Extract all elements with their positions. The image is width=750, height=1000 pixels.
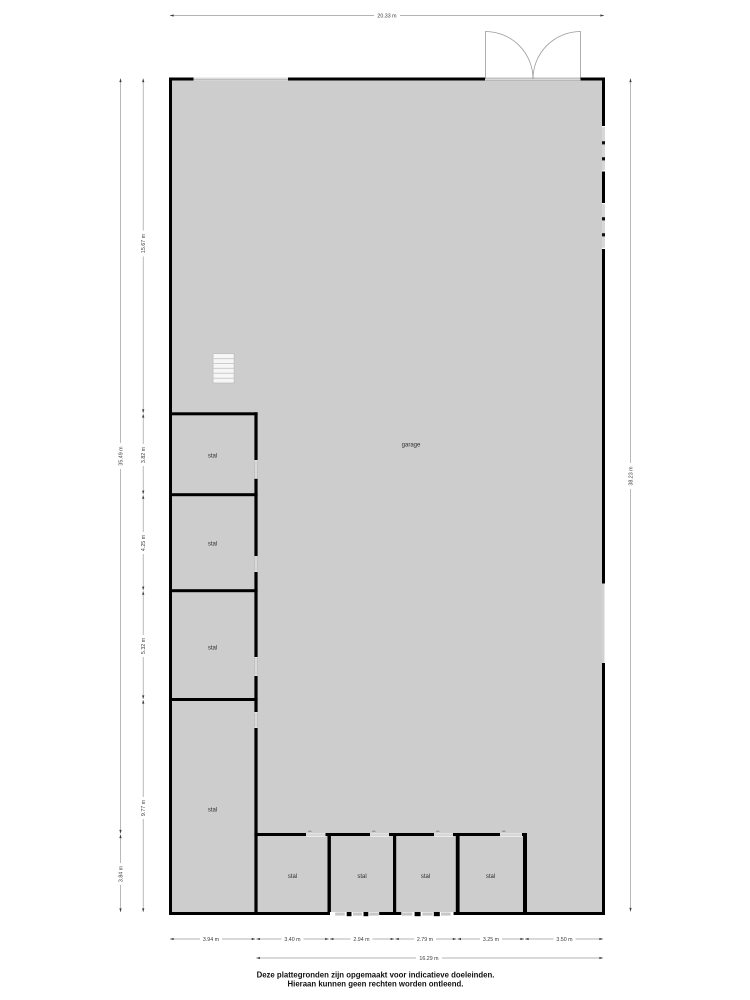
svg-text:stal: stal [421,874,430,880]
svg-text:2.79 m: 2.79 m [417,937,434,943]
svg-text:9.77 m: 9.77 m [141,799,147,816]
svg-text:20.33 m: 20.33 m [377,14,397,20]
svg-text:16.29 m: 16.29 m [419,956,439,962]
svg-text:stal: stal [208,454,217,460]
svg-text:38.23 m: 38.23 m [629,466,635,486]
svg-text:35.49 m: 35.49 m [119,446,125,466]
svg-text:4.25 m: 4.25 m [141,534,147,551]
svg-text:3.84 m: 3.84 m [119,865,125,882]
svg-text:3.40 m: 3.40 m [284,937,301,943]
svg-text:garage: garage [402,443,421,449]
svg-text:stal: stal [357,874,366,880]
svg-text:5.32 m: 5.32 m [141,637,147,654]
svg-text:stal: stal [208,646,217,652]
svg-text:Deze plattegronden zijn opgema: Deze plattegronden zijn opgemaakt voor i… [257,971,495,980]
svg-text:3.94 m: 3.94 m [203,937,220,943]
svg-text:2.94 m: 2.94 m [353,937,370,943]
svg-text:3.25 m: 3.25 m [483,937,500,943]
svg-text:3.50 m: 3.50 m [556,937,573,943]
svg-text:stal: stal [486,874,495,880]
svg-text:Hieraan kunnen geen rechten wo: Hieraan kunnen geen rechten worden ontle… [288,980,464,989]
svg-text:stal: stal [208,808,217,814]
svg-text:3.82 m: 3.82 m [141,446,147,463]
svg-text:15.67 m: 15.67 m [141,233,147,253]
svg-text:stal: stal [208,542,217,548]
svg-text:stal: stal [288,874,297,880]
